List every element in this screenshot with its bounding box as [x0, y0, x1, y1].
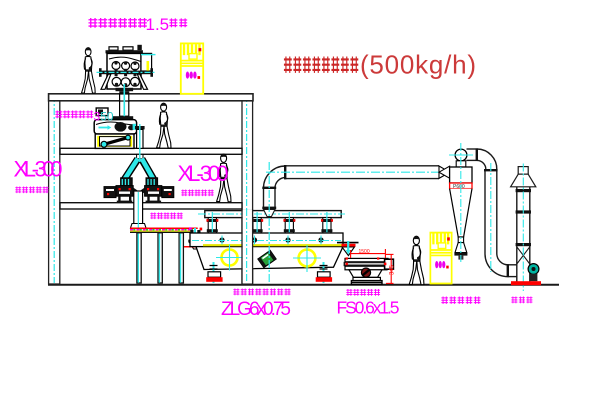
svg-text:XL-300: XL-300	[178, 161, 229, 186]
svg-text:1.5: 1.5	[146, 15, 170, 34]
svg-text:50: 50	[100, 110, 114, 124]
svg-text:FS0.6x1.5: FS0.6x1.5	[337, 298, 400, 318]
svg-text:345: 345	[390, 264, 396, 275]
svg-text:XL-300: XL-300	[14, 157, 63, 182]
svg-text:1500: 1500	[359, 249, 370, 255]
svg-text:(500kg/h): (500kg/h)	[360, 50, 476, 80]
svg-text:ZLG6x0.75: ZLG6x0.75	[221, 299, 291, 320]
